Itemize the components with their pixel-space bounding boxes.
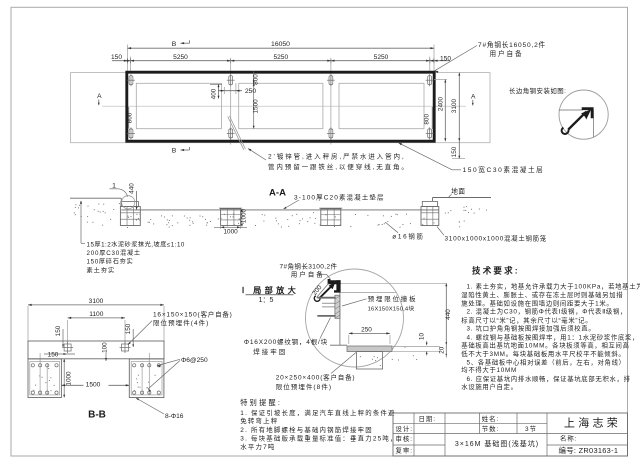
svg-text:B-B: B-B xyxy=(88,410,106,421)
svg-text:3100: 3100 xyxy=(89,298,104,305)
svg-text:3100: 3100 xyxy=(451,98,458,113)
svg-text:5250: 5250 xyxy=(273,54,288,61)
svg-text:B: B xyxy=(172,148,177,155)
svg-text:6. 应保证基坑内排水顺畅，保证基坑底部无积水，排: 6. 应保证基坑内排水顺畅，保证基坑底部无积水，排 xyxy=(467,374,631,383)
svg-text:1000: 1000 xyxy=(65,371,72,386)
svg-text:A-A: A-A xyxy=(269,188,286,199)
svg-text:7#角钢长3100,2件: 7#角钢长3100,2件 xyxy=(280,261,338,270)
svg-text:1500: 1500 xyxy=(86,381,101,388)
svg-text:200厚C30混凝土: 200厚C30混凝土 xyxy=(87,249,141,257)
svg-text:焊接牢固: 焊接牢固 xyxy=(253,347,287,356)
svg-text:日期:: 日期: xyxy=(419,415,437,423)
svg-text:3. 坑口护角角钢按图焊接加强后须校直。: 3. 坑口护角角钢按图焊接加强后须校直。 xyxy=(467,324,596,333)
svg-text:150宽C30素混凝土层: 150宽C30素混凝土层 xyxy=(463,165,545,174)
svg-text:20: 20 xyxy=(438,346,445,353)
svg-text:名称:: 名称: xyxy=(560,434,578,443)
svg-text:限位预埋件(4件): 限位预埋件(4件) xyxy=(153,318,209,327)
svg-text:150厚碎石夯实: 150厚碎石夯实 xyxy=(87,258,134,266)
svg-text:1500: 1500 xyxy=(253,99,260,114)
svg-text:Φ16X200螺纹钢，4根/块: Φ16X200螺纹钢，4根/块 xyxy=(244,337,328,346)
svg-text:2. 混凝土为C30，钢筋Φ代表Ⅰ级钢，Φ代表Ⅱ级钢，: 2. 混凝土为C30，钢筋Φ代表Ⅰ级钢，Φ代表Ⅱ级钢， xyxy=(467,307,628,316)
svg-text:水设施用户自定。: 水设施用户自定。 xyxy=(461,382,517,391)
svg-text:1000: 1000 xyxy=(241,208,248,223)
svg-text:1. 保证引坡长度，满足汽车直线上秤的条件避: 1. 保证引坡长度，满足汽车直线上秤的条件避 xyxy=(240,408,395,417)
svg-text:15厚1:2水泥砂浆抹光,坡度≤1:10: 15厚1:2水泥砂浆抹光,坡度≤1:10 xyxy=(87,240,185,248)
svg-text:复审:: 复审: xyxy=(396,446,414,455)
svg-text:上海志荣: 上海志荣 xyxy=(564,416,621,430)
svg-text:800: 800 xyxy=(424,114,431,125)
svg-text:地面: 地面 xyxy=(451,187,465,196)
svg-text:150: 150 xyxy=(48,351,59,358)
svg-text:3-100厚C20素混凝土垫层: 3-100厚C20素混凝土垫层 xyxy=(294,192,385,201)
svg-text:250: 250 xyxy=(361,327,372,334)
svg-text:审核:: 审核: xyxy=(396,434,414,443)
svg-text:均不得大于10MM: 均不得大于10MM xyxy=(461,365,517,374)
svg-text:节数:: 节数: xyxy=(482,424,500,433)
svg-text:基础板高出基坑地面10MM。各块板须等高，相互间高: 基础板高出基坑地面10MM。各块板须等高，相互间高 xyxy=(461,340,629,349)
svg-text:8-Φ16: 8-Φ16 xyxy=(165,413,184,420)
svg-text:长边角钢安装如图:: 长边角钢安装如图: xyxy=(509,86,566,95)
svg-text:440: 440 xyxy=(445,309,452,320)
svg-text:预埋限位撞板: 预埋限位撞板 xyxy=(368,294,418,303)
svg-text:800: 800 xyxy=(252,74,259,85)
svg-text:1: 1 xyxy=(112,182,116,189)
svg-text:A: A xyxy=(97,93,102,100)
svg-text:3×16M 基础图(浅基坑): 3×16M 基础图(浅基坑) xyxy=(455,439,539,448)
svg-text:2’镀锌管,进入秤房,严禁水进入管内,: 2’镀锌管,进入秤房,严禁水进入管内, xyxy=(268,151,406,160)
svg-text:Ⅰ 局部放大: Ⅰ 局部放大 xyxy=(242,285,299,295)
svg-text:5250: 5250 xyxy=(374,54,389,61)
svg-text:150: 150 xyxy=(440,55,451,62)
svg-text:3. 每块基础版承载重量标准值：垂直力25吨，: 3. 每块基础版承载重量标准值：垂直力25吨， xyxy=(240,434,397,443)
svg-text:20×250×400(客户自备): 20×250×400(客户自备) xyxy=(276,372,356,381)
svg-text:2400: 2400 xyxy=(438,96,445,111)
svg-text:管内预留一跟铁丝,以便穿线,无直角。: 管内预留一跟铁丝,以便穿线,无直角。 xyxy=(268,162,410,171)
svg-text:免转弯上秤: 免转弯上秤 xyxy=(240,416,278,425)
svg-text:3节: 3节 xyxy=(525,425,537,433)
svg-text:素土夯实: 素土夯实 xyxy=(87,266,116,274)
svg-text:施处理。基础如设施在围墙边则间距要大于1米。: 施处理。基础如设施在围墙边则间距要大于1米。 xyxy=(461,298,613,307)
svg-text:用户自备: 用户自备 xyxy=(490,49,524,58)
svg-text:特别提醒:: 特别提醒: xyxy=(240,398,282,407)
svg-text:1000: 1000 xyxy=(223,228,238,235)
svg-text:16×150×150(客户自备): 16×150×150(客户自备) xyxy=(153,310,233,319)
svg-text:姓名:: 姓名: xyxy=(482,414,500,423)
svg-text:5、各基础板中心相对误差（前后，左右，对角线）: 5、各基础板中心相对误差（前后，左右，对角线） xyxy=(467,357,626,366)
svg-text:低不大于3MM。每块基础板用水平尺校平不能倾斜。: 低不大于3MM。每块基础板用水平尺校平不能倾斜。 xyxy=(461,349,625,358)
svg-text:5250: 5250 xyxy=(173,54,188,61)
svg-text:10: 10 xyxy=(419,333,426,340)
svg-text:7#角钢长16050,2件: 7#角钢长16050,2件 xyxy=(478,40,546,49)
svg-text:800: 800 xyxy=(127,112,134,123)
svg-text:2. 所有地脚螺栓与基础内钢筋焊接牢固: 2. 所有地脚螺栓与基础内钢筋焊接牢固 xyxy=(240,425,373,434)
svg-text:编号: ZR03163-1: 编号: ZR03163-1 xyxy=(559,446,619,455)
svg-text:440: 440 xyxy=(129,183,136,194)
svg-text:100: 100 xyxy=(101,342,108,353)
svg-text:1：5: 1：5 xyxy=(259,297,274,304)
svg-text:150: 150 xyxy=(125,323,132,334)
svg-text:ø16钢筋: ø16钢筋 xyxy=(392,231,424,240)
svg-text:3100x1000x1000混凝土钢筋笼: 3100x1000x1000混凝土钢筋笼 xyxy=(445,234,547,243)
svg-text:4. 螺纹钢与基础板按图焊牢，用1：1水泥砂浆作底浆，: 4. 螺纹钢与基础板按图焊牢，用1：1水泥砂浆作底浆， xyxy=(467,332,640,341)
svg-text:150: 150 xyxy=(451,146,458,157)
svg-text:400: 400 xyxy=(211,88,218,99)
svg-text:250: 250 xyxy=(245,88,256,95)
svg-text:150: 150 xyxy=(55,325,62,336)
svg-text:16X150X150,4块: 16X150X150,4块 xyxy=(368,304,415,312)
svg-text:湿陷性黄土、膨胀土、或存在冻土层时则基础另加措: 湿陷性黄土、膨胀土、或存在冻土层时则基础另加措 xyxy=(461,290,623,299)
svg-text:1100: 1100 xyxy=(89,311,104,318)
svg-text:设计:: 设计: xyxy=(396,424,414,433)
svg-text:Φ6@250: Φ6@250 xyxy=(181,357,208,364)
svg-text:限位预埋件(8件): 限位预埋件(8件) xyxy=(276,382,332,391)
svg-text:标高尺寸以“米”记，其余尺寸以“毫米”记。: 标高尺寸以“米”记，其余尺寸以“毫米”记。 xyxy=(461,315,592,324)
svg-text:1. 素土夯实，地基允许承载力大于100KPa，若地基土为: 1. 素土夯实，地基允许承载力大于100KPa，若地基土为 xyxy=(467,281,640,290)
svg-text:技术要求:: 技术要求: xyxy=(472,265,520,275)
svg-text:16050: 16050 xyxy=(271,41,290,48)
svg-text:A: A xyxy=(471,94,476,101)
svg-text:水平力7吨: 水平力7吨 xyxy=(240,442,275,451)
svg-text:150: 150 xyxy=(111,54,122,61)
svg-text:B: B xyxy=(172,41,177,48)
